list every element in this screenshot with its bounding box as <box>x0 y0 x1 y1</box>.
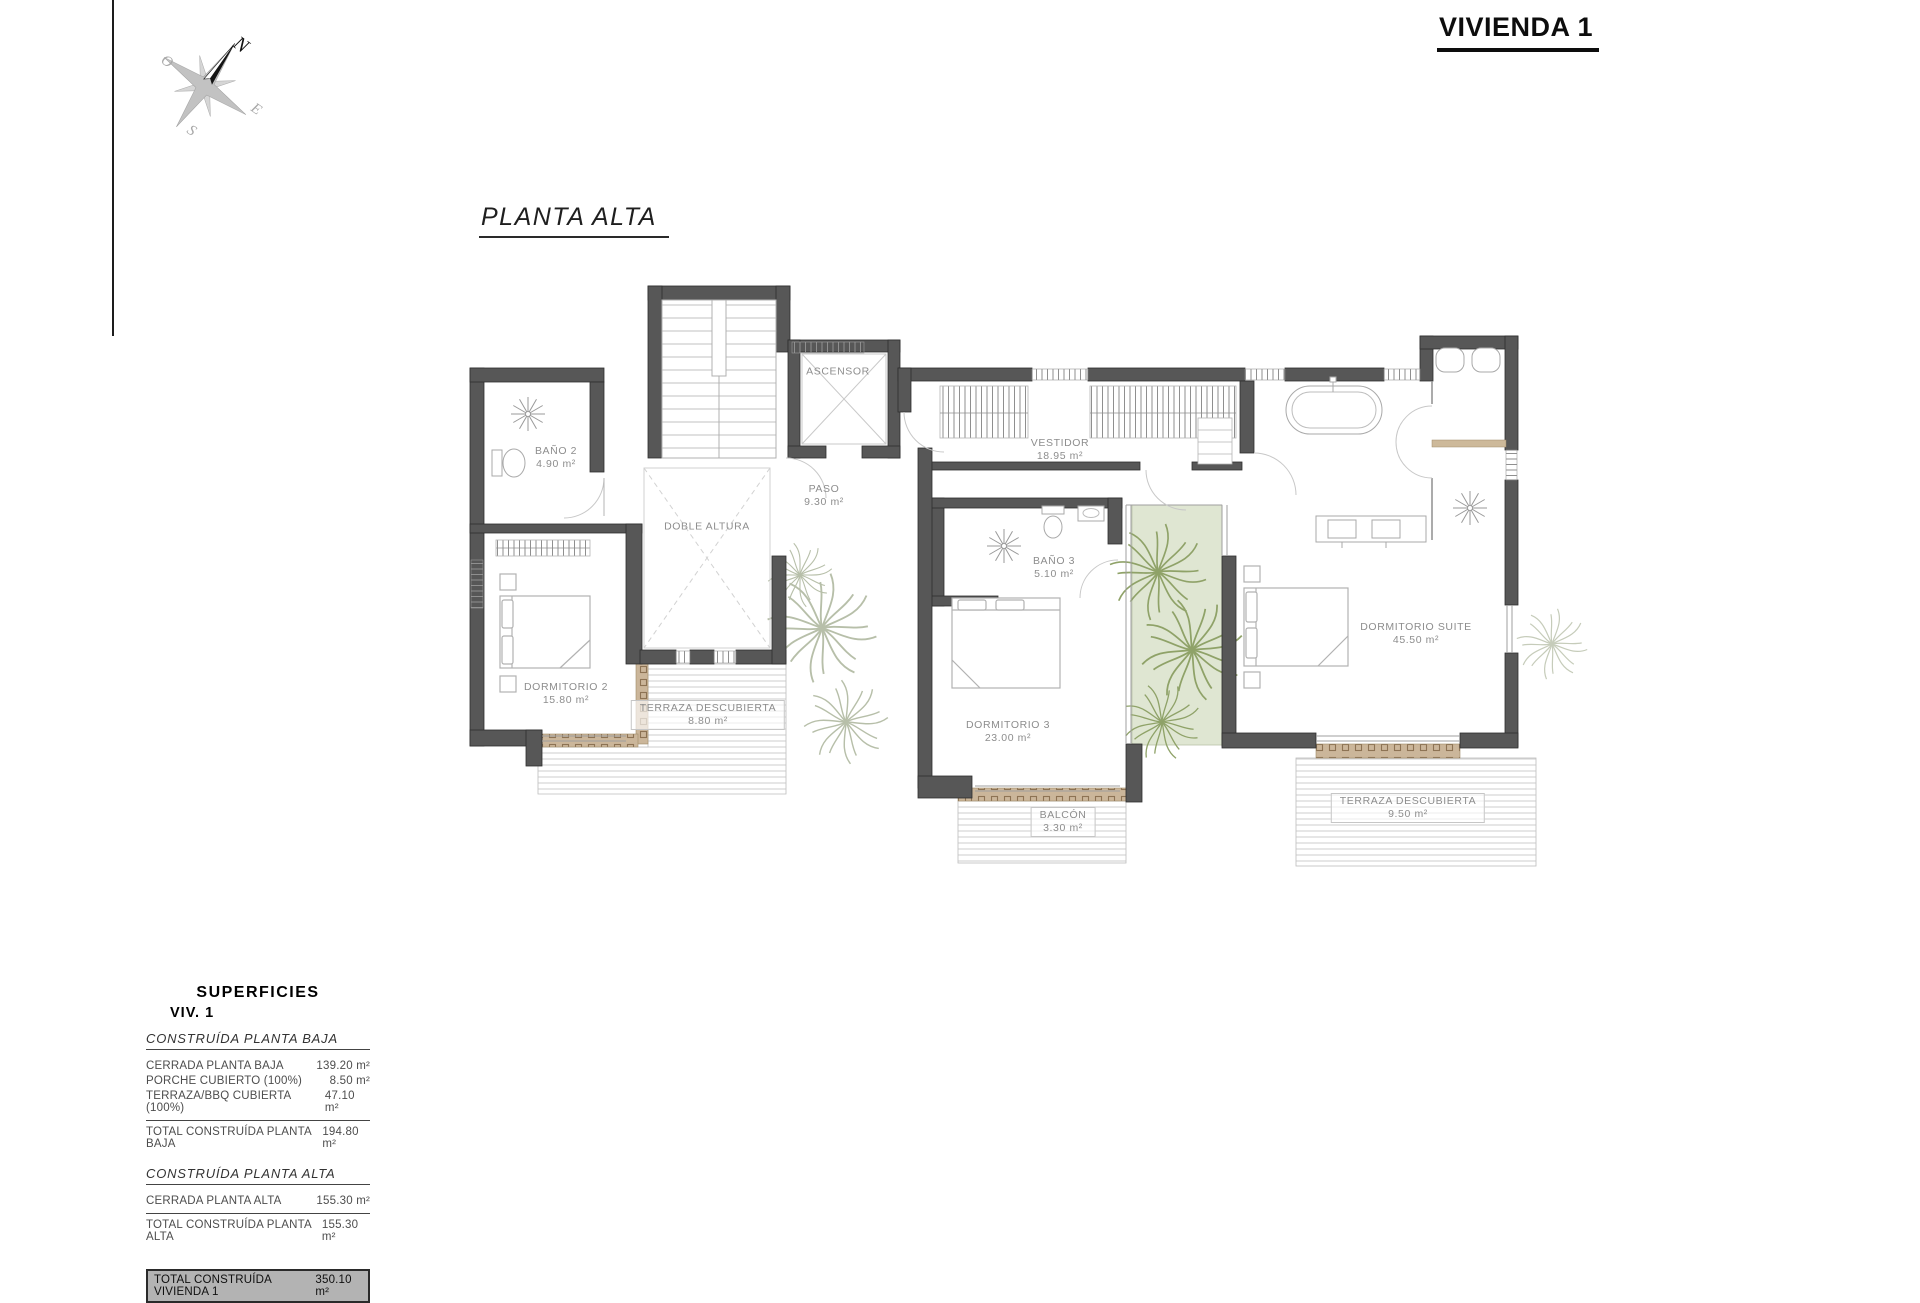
shower-suite <box>1453 491 1487 525</box>
room-name: DOBLE ALTURA <box>664 521 750 534</box>
room-area: 5.10 m² <box>1033 568 1075 581</box>
room-label-vestidor: VESTIDOR 18.95 m² <box>1031 437 1089 463</box>
room-name: PASO <box>804 483 844 496</box>
room-label-terraza-izquierda: TERRAZA DESCUBIERTA 8.80 m² <box>631 700 785 730</box>
floor-plan-sheet: { "page": { "title": "VIVIENDA 1", "plan… <box>0 0 1920 1280</box>
room-label-dormitorio-suite: DORMITORIO SUITE 45.50 m² <box>1360 621 1472 647</box>
room-area: 4.90 m² <box>535 458 577 471</box>
compass-south-label: S <box>184 122 200 140</box>
shower-bano2 <box>511 397 545 431</box>
room-area: 15.80 m² <box>524 694 608 707</box>
room-name: DORMITORIO SUITE <box>1360 621 1472 634</box>
room-label-bano-2: BAÑO 2 4.90 m² <box>535 445 577 471</box>
room-area: 45.50 m² <box>1360 634 1472 647</box>
room-name: BALCÓN <box>1040 809 1087 822</box>
floor-plan-drawing: N O E S <box>0 0 1920 1280</box>
room-label-dormitorio-2: DORMITORIO 2 15.80 m² <box>524 681 608 707</box>
room-label-balcon: BALCÓN 3.30 m² <box>1031 807 1096 837</box>
compass-east-label: E <box>247 100 265 119</box>
room-name: VESTIDOR <box>1031 437 1089 450</box>
room-area: 9.30 m² <box>804 496 844 509</box>
compass-west-label: O <box>158 52 176 71</box>
room-area: 23.00 m² <box>966 732 1050 745</box>
room-name: DORMITORIO 3 <box>966 719 1050 732</box>
room-name: BAÑO 2 <box>535 445 577 458</box>
room-area: 18.95 m² <box>1031 450 1089 463</box>
staircase <box>662 300 776 458</box>
room-name: DORMITORIO 2 <box>524 681 608 694</box>
room-label-paso: PASO 9.30 m² <box>804 483 844 509</box>
compass-north-label: N <box>228 32 254 59</box>
double-height-void <box>644 468 770 648</box>
room-area: 9.50 m² <box>1340 808 1476 821</box>
room-area: 8.80 m² <box>640 715 776 728</box>
room-label-bano-3: BAÑO 3 5.10 m² <box>1033 555 1075 581</box>
room-label-terraza-derecha: TERRAZA DESCUBIERTA 9.50 m² <box>1331 793 1485 823</box>
room-label-ascensor: ASCENSOR <box>806 366 870 379</box>
compass-rose: N O E S <box>135 15 275 156</box>
shower-bano3 <box>987 529 1021 563</box>
room-name: BAÑO 3 <box>1033 555 1075 568</box>
room-area: 3.30 m² <box>1040 822 1087 835</box>
sheet-border-line <box>112 0 114 336</box>
room-name: TERRAZA DESCUBIERTA <box>640 702 776 715</box>
room-name: ASCENSOR <box>806 366 870 379</box>
room-name: TERRAZA DESCUBIERTA <box>1340 795 1476 808</box>
room-label-doble-altura: DOBLE ALTURA <box>664 521 750 534</box>
room-label-dormitorio-3: DORMITORIO 3 23.00 m² <box>966 719 1050 745</box>
